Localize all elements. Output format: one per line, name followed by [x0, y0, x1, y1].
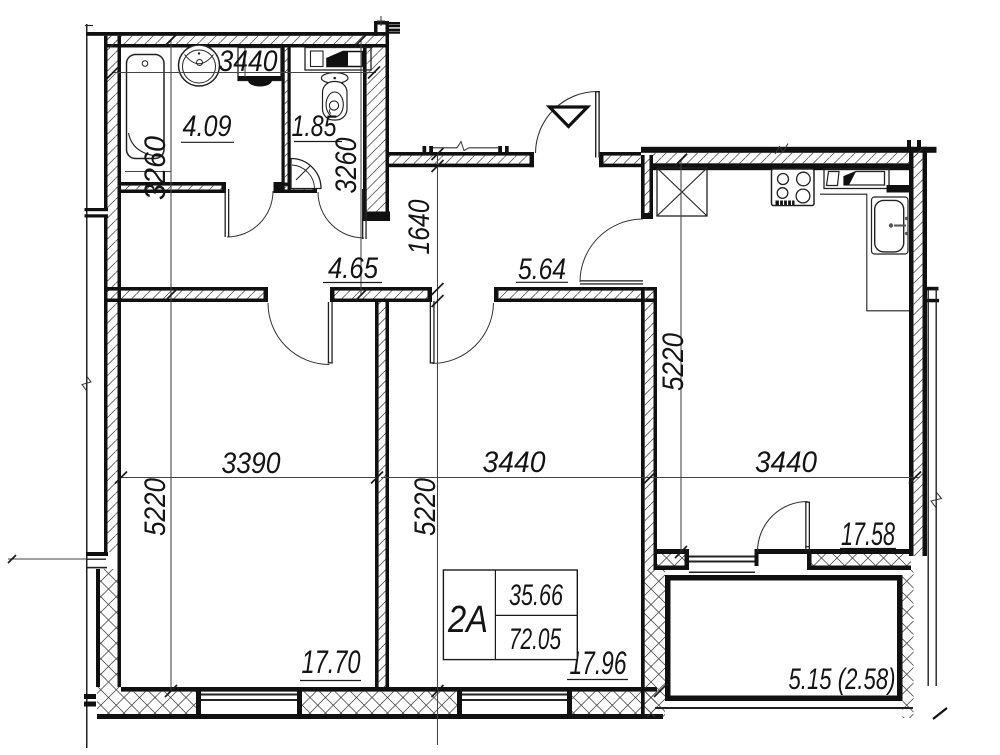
svg-text:5220: 5220 [657, 332, 690, 391]
svg-text:35.66: 35.66 [509, 579, 563, 612]
svg-text:3440: 3440 [219, 45, 279, 78]
svg-text:5.64: 5.64 [518, 253, 566, 286]
svg-text:3260: 3260 [139, 135, 172, 200]
svg-text:3440: 3440 [755, 446, 818, 479]
svg-text:72.05: 72.05 [509, 623, 561, 656]
svg-text:3440: 3440 [483, 446, 547, 479]
svg-text:1640: 1640 [403, 199, 436, 254]
svg-text:3390: 3390 [222, 447, 282, 480]
svg-text:3260: 3260 [330, 137, 363, 193]
svg-text:4.09: 4.09 [183, 110, 232, 143]
svg-text:5220: 5220 [139, 477, 172, 536]
svg-text:1.85: 1.85 [292, 110, 337, 143]
svg-text:4.65: 4.65 [328, 252, 379, 285]
svg-text:17.58: 17.58 [841, 516, 895, 552]
svg-text:5220: 5220 [409, 477, 442, 536]
svg-text:2A: 2A [447, 599, 488, 641]
svg-text:17.70: 17.70 [302, 644, 361, 680]
svg-text:17.96: 17.96 [570, 645, 627, 681]
svg-text:5.15 (2.58): 5.15 (2.58) [789, 663, 896, 696]
